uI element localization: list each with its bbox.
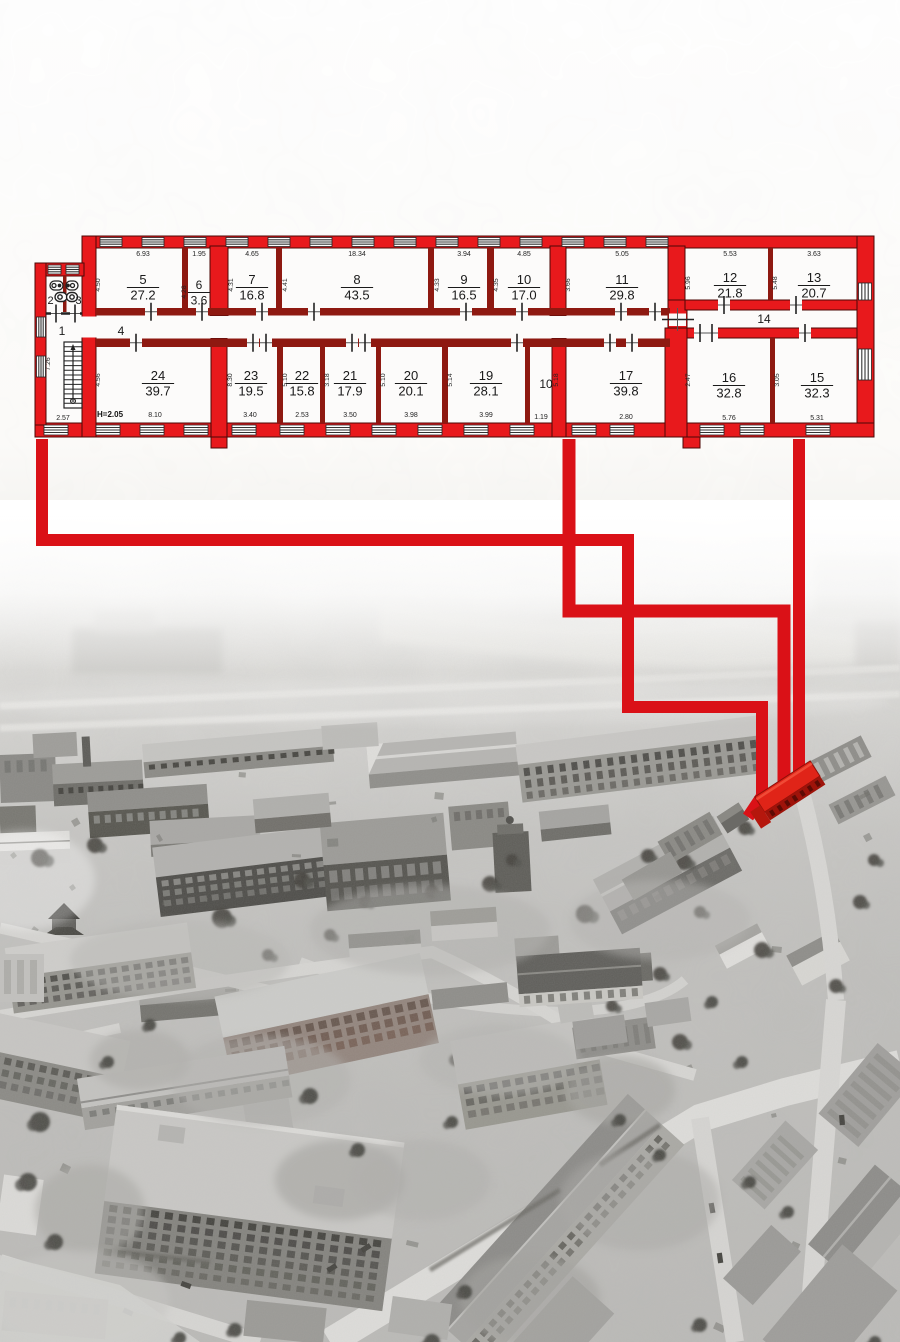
- svg-text:4.56: 4.56: [95, 373, 102, 386]
- svg-text:4.41: 4.41: [282, 278, 289, 291]
- svg-text:32.3: 32.3: [804, 386, 829, 401]
- svg-text:5.14: 5.14: [447, 373, 454, 386]
- svg-text:3: 3: [75, 295, 81, 307]
- svg-text:1.95: 1.95: [192, 251, 206, 258]
- svg-text:16: 16: [722, 370, 736, 385]
- svg-text:3.18: 3.18: [324, 373, 331, 386]
- svg-text:2.53: 2.53: [295, 412, 309, 419]
- svg-text:5.31: 5.31: [810, 415, 824, 422]
- svg-text:5.10: 5.10: [282, 373, 289, 386]
- svg-text:3.98: 3.98: [404, 412, 418, 419]
- svg-text:6: 6: [196, 278, 203, 292]
- svg-text:39.7: 39.7: [145, 384, 170, 399]
- svg-text:17: 17: [619, 368, 633, 383]
- svg-text:17.9: 17.9: [337, 384, 362, 399]
- svg-text:8.30: 8.30: [227, 373, 234, 386]
- svg-text:3.99: 3.99: [479, 412, 493, 419]
- svg-text:1: 1: [59, 324, 66, 338]
- svg-text:11: 11: [615, 272, 629, 287]
- svg-text:3.63: 3.63: [807, 251, 821, 258]
- svg-text:4.31: 4.31: [228, 278, 235, 291]
- svg-text:43.5: 43.5: [344, 288, 369, 303]
- svg-text:23: 23: [244, 368, 258, 383]
- svg-text:4.50: 4.50: [95, 278, 102, 291]
- svg-text:16.5: 16.5: [451, 288, 476, 303]
- svg-text:2.80: 2.80: [619, 414, 633, 421]
- svg-text:24: 24: [151, 368, 165, 383]
- svg-text:5.10: 5.10: [380, 373, 387, 386]
- svg-text:2.57: 2.57: [56, 415, 70, 422]
- svg-text:3.40: 3.40: [243, 412, 257, 419]
- svg-text:4.33: 4.33: [434, 278, 441, 291]
- svg-text:9: 9: [460, 272, 467, 287]
- svg-text:3.66: 3.66: [565, 278, 572, 291]
- svg-text:5: 5: [139, 272, 146, 287]
- svg-text:3.94: 3.94: [457, 251, 471, 258]
- svg-text:13: 13: [807, 270, 821, 285]
- svg-text:7.26: 7.26: [45, 357, 52, 370]
- svg-text:29.8: 29.8: [609, 288, 634, 303]
- svg-text:20.7: 20.7: [801, 286, 826, 301]
- svg-text:10: 10: [517, 272, 531, 287]
- svg-text:19.5: 19.5: [238, 384, 263, 399]
- svg-text:19: 19: [479, 368, 493, 383]
- svg-text:20: 20: [404, 368, 418, 383]
- svg-text:21.8: 21.8: [717, 286, 742, 301]
- svg-text:28.1: 28.1: [473, 384, 498, 399]
- svg-text:1.19: 1.19: [534, 414, 548, 421]
- svg-text:3.50: 3.50: [343, 412, 357, 419]
- svg-text:32.8: 32.8: [716, 386, 741, 401]
- svg-text:18.34: 18.34: [348, 251, 366, 258]
- svg-text:12: 12: [723, 270, 737, 285]
- svg-text:5.76: 5.76: [722, 415, 736, 422]
- svg-text:10: 10: [539, 377, 553, 391]
- svg-text:2.47: 2.47: [685, 373, 692, 386]
- svg-text:5.96: 5.96: [685, 276, 692, 289]
- svg-text:21: 21: [343, 368, 357, 383]
- svg-text:5.05: 5.05: [615, 251, 629, 258]
- svg-text:20.1: 20.1: [398, 384, 423, 399]
- svg-text:4.85: 4.85: [517, 251, 531, 258]
- svg-text:27.2: 27.2: [130, 288, 155, 303]
- svg-text:14: 14: [757, 312, 771, 326]
- svg-text:5.48: 5.48: [772, 276, 779, 289]
- svg-text:4.28: 4.28: [181, 285, 188, 298]
- svg-text:H=2.05: H=2.05: [97, 410, 124, 419]
- svg-text:8: 8: [353, 272, 360, 287]
- svg-text:15: 15: [810, 370, 824, 385]
- svg-text:8.10: 8.10: [148, 412, 162, 419]
- svg-text:2: 2: [47, 295, 53, 307]
- svg-text:5.18: 5.18: [553, 373, 560, 386]
- svg-text:4.35: 4.35: [493, 278, 500, 291]
- svg-text:3.05: 3.05: [774, 373, 781, 386]
- svg-text:4: 4: [118, 324, 125, 338]
- svg-text:15.8: 15.8: [289, 384, 314, 399]
- svg-text:6.93: 6.93: [136, 251, 150, 258]
- svg-text:16.8: 16.8: [239, 288, 264, 303]
- svg-text:17.0: 17.0: [511, 288, 536, 303]
- svg-text:7: 7: [248, 272, 255, 287]
- svg-text:22: 22: [295, 368, 309, 383]
- svg-text:3.6: 3.6: [191, 294, 208, 308]
- svg-text:39.8: 39.8: [613, 384, 638, 399]
- svg-text:5.53: 5.53: [723, 251, 737, 258]
- svg-text:4.65: 4.65: [245, 251, 259, 258]
